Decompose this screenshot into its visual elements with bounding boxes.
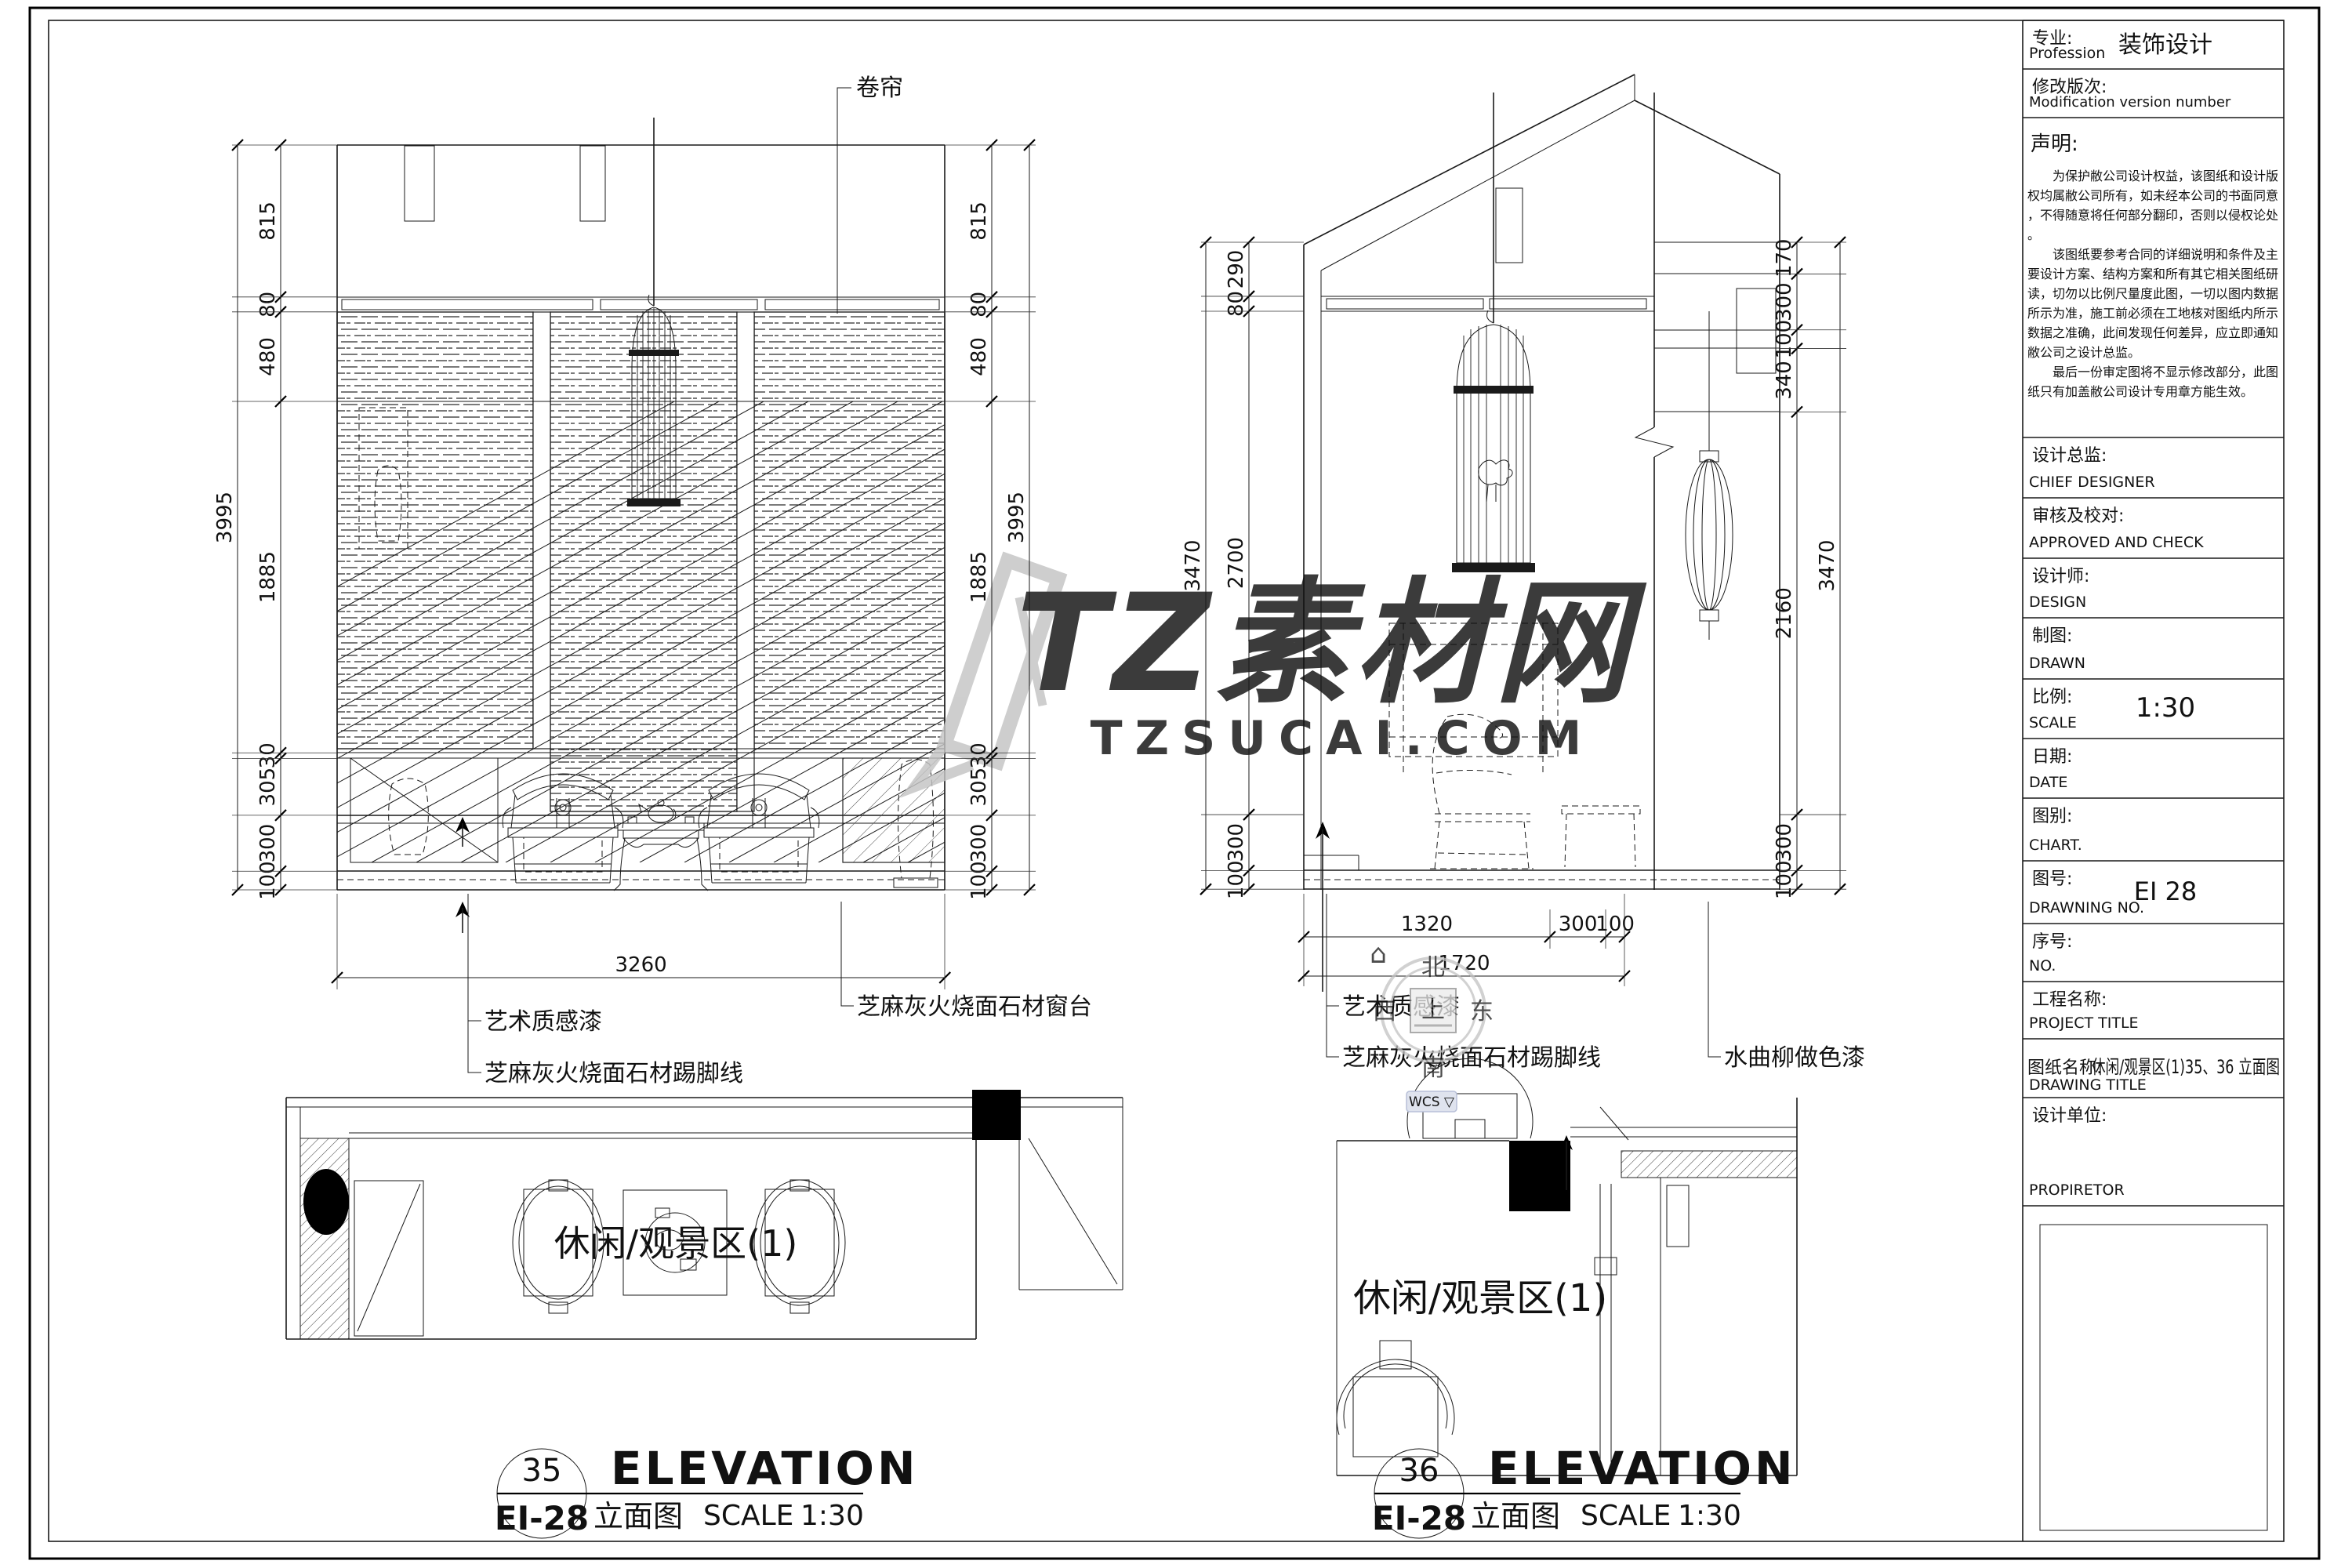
svg-text:1720: 1720: [1438, 952, 1490, 975]
statement-line: 最后一份审定图将不显示修改部分，此图: [2027, 365, 2278, 379]
label-roller-blind: 卷帘: [856, 74, 903, 102]
elevation-title-cn: 立面图: [593, 1499, 683, 1534]
wcs-selector[interactable]: WCS ▽: [1406, 1091, 1457, 1112]
label-ash-wood-paint: 水曲柳做色漆: [1724, 1044, 1865, 1072]
plan-view-35: [286, 1090, 1123, 1339]
elevation-title-cn: 立面图: [1471, 1499, 1560, 1534]
tb-label-cn: 序号:: [2032, 932, 2072, 952]
svg-text:100: 100: [1225, 860, 1248, 899]
statement-line: 该图纸要参考合同的详细说明和条件及主: [2027, 247, 2278, 262]
svg-text:480: 480: [967, 337, 991, 376]
svg-text:300: 300: [1559, 913, 1598, 936]
svg-text:100: 100: [256, 861, 280, 900]
statement-line: 读，切勿以比例尺量度此图，一切以图内数据: [2027, 286, 2278, 301]
home-icon[interactable]: ⌂: [1370, 938, 1387, 970]
svg-text:305: 305: [256, 768, 280, 807]
elevation-title-en: ELEVATION: [611, 1442, 919, 1495]
tb-value: 装饰设计: [2118, 31, 2212, 59]
statement-line: 权均属敝公司所有，如未经本公司的书面同意: [2027, 188, 2278, 203]
tb-label-en: Modification version number: [2029, 94, 2231, 111]
tb-label-cn: 制图:: [2032, 626, 2072, 646]
elevation-title-en: ELEVATION: [1488, 1442, 1796, 1495]
drawing-canvas: TZ素材网 TZSUCAI.COM 3995815804801885303053…: [0, 0, 2352, 1568]
statement-line: 。: [2027, 227, 2040, 242]
svg-text:100: 100: [1773, 860, 1796, 899]
tb-label-cn: 设计单位:: [2032, 1106, 2107, 1126]
tb-label-en: APPROVED AND CHECK: [2029, 534, 2204, 551]
bubble-number: 35: [522, 1453, 562, 1489]
svg-text:3470: 3470: [1181, 539, 1205, 591]
tb-label-en: DATE: [2029, 774, 2067, 791]
svg-text:80: 80: [256, 292, 280, 318]
scale-label: SCALE: [703, 1500, 793, 1532]
compass-east[interactable]: 东: [1470, 998, 1494, 1025]
svg-text:290: 290: [1225, 250, 1248, 289]
tb-label-cn: 设计总监:: [2032, 446, 2107, 466]
room-label-plan-36: 休闲/观景区(1): [1353, 1276, 1607, 1320]
svg-text:170: 170: [1773, 238, 1796, 278]
svg-text:3470: 3470: [1816, 539, 1839, 591]
statement-line: 纸只有加盖敝公司设计专用章方能生效。: [2027, 384, 2253, 399]
tb-label-en: PROPIRETOR: [2029, 1181, 2125, 1199]
svg-text:3995: 3995: [1005, 492, 1029, 543]
label-skirting-36: 芝麻灰火烧面石材踢脚线: [1342, 1044, 1601, 1072]
page-frame: [30, 8, 2319, 1559]
scale-value: 1:30: [1678, 1500, 1741, 1532]
tb-label-en: DESIGN: [2029, 593, 2086, 611]
label-stone-sill: 芝麻灰火烧面石材窗台: [857, 993, 1092, 1021]
scale-label: SCALE: [1581, 1500, 1671, 1532]
scale-value: 1:30: [800, 1500, 864, 1532]
tb-label-en: CHART.: [2029, 837, 2082, 854]
plan-view-36: [1337, 1058, 1797, 1475]
tb-value: 休闲/观景区(1)35、36 立面图: [2092, 1056, 2280, 1078]
statement-line: 为保护敝公司设计权益，该图纸和设计版: [2027, 169, 2278, 183]
svg-text:100: 100: [1595, 913, 1635, 936]
compass-up-label: 上: [1421, 996, 1445, 1024]
svg-text:815: 815: [967, 201, 991, 241]
tb-label-en: DRAWN: [2029, 655, 2085, 672]
svg-text:30: 30: [256, 742, 280, 768]
svg-text:2700: 2700: [1225, 537, 1248, 589]
watermark-brand: TZ素材网: [1016, 564, 1647, 722]
statement-line: 敝公司之设计总监。: [2027, 345, 2140, 360]
svg-text:300: 300: [1773, 282, 1796, 321]
tb-label-cn: 图别:: [2032, 807, 2072, 826]
tb-label-en: PROJECT TITLE: [2029, 1014, 2139, 1032]
svg-text:300: 300: [967, 824, 991, 863]
svg-text:80: 80: [967, 292, 991, 318]
svg-text:1885: 1885: [256, 551, 280, 603]
svg-text:100: 100: [967, 861, 991, 900]
statement-line: 要设计方案、结构方案和所有其它相关图纸研: [2027, 267, 2278, 281]
compass-west[interactable]: 西: [1373, 998, 1396, 1025]
svg-text:340: 340: [1773, 361, 1796, 400]
tb-label-cn: 图号:: [2032, 869, 2072, 889]
statement-line: ，不得随意将任何部分翻印，否则以侵权论处: [2027, 208, 2278, 223]
tb-label-en: SCALE: [2029, 714, 2077, 731]
svg-text:300: 300: [1225, 823, 1248, 862]
cad-sheet: TZ素材网 TZSUCAI.COM 3995815804801885303053…: [0, 0, 2352, 1568]
title-block: 专业:Profession装饰设计修改版次:Modification versi…: [2023, 20, 2284, 1541]
svg-text:30: 30: [967, 742, 991, 768]
compass-south[interactable]: 南: [1421, 1054, 1445, 1082]
svg-text:300: 300: [256, 824, 280, 863]
statement-line: 数据之准确，此间发现任何差异，应立即通知: [2027, 325, 2278, 340]
bubble-sheet-no: EI-28: [495, 1499, 589, 1537]
title-bubbles: 35EI-28ELEVATION立面图SCALE1:3036EI-28ELEVA…: [495, 1442, 1796, 1538]
tb-value: 1:30: [2136, 692, 2195, 724]
bubble-number: 36: [1399, 1453, 1439, 1489]
svg-text:1885: 1885: [967, 551, 991, 603]
wcs-label: WCS ▽: [1409, 1094, 1455, 1110]
watermark: TZ素材网 TZSUCAI.COM: [914, 561, 1647, 787]
tb-label-cn: 日期:: [2032, 747, 2072, 767]
tb-label-cn: 审核及校对:: [2032, 506, 2124, 526]
tb-label-cn: 比例:: [2032, 688, 2072, 707]
tb-label-en: DRAWNING NO.: [2029, 899, 2144, 916]
svg-text:1320: 1320: [1401, 913, 1453, 936]
elevation-36-linework: [1304, 74, 1780, 992]
tb-label-en: Profession: [2029, 45, 2105, 62]
tb-label-en: DRAWING TITLE: [2029, 1076, 2147, 1094]
room-label-plan-35: 休闲/观景区(1): [554, 1222, 798, 1265]
bubble-sheet-no: EI-28: [1372, 1499, 1466, 1537]
tb-label-cn: 设计师:: [2032, 567, 2089, 586]
svg-text:3995: 3995: [213, 492, 237, 543]
statement-title: 声明:: [2031, 132, 2078, 156]
svg-text:300: 300: [1773, 823, 1796, 862]
statement-line: 所示为准，施工前必须在工地核对图纸内所示: [2027, 306, 2278, 321]
label-art-paint-35: 艺术质感漆: [485, 1008, 602, 1036]
svg-text:2160: 2160: [1773, 587, 1796, 639]
tb-label-en: CHIEF DESIGNER: [2029, 474, 2155, 491]
compass-north[interactable]: 北: [1421, 954, 1445, 982]
label-skirting-35: 芝麻灰火烧面石材踢脚线: [485, 1060, 743, 1087]
svg-text:480: 480: [256, 337, 280, 376]
svg-text:3260: 3260: [615, 953, 667, 977]
svg-text:100: 100: [1773, 320, 1796, 359]
tb-value: EI 28: [2134, 877, 2198, 906]
tb-label-cn: 工程名称:: [2032, 990, 2107, 1010]
tb-label-en: NO.: [2029, 957, 2056, 975]
svg-text:80: 80: [1225, 291, 1248, 317]
svg-text:305: 305: [967, 768, 991, 807]
svg-text:815: 815: [256, 201, 280, 241]
watermark-domain: TZSUCAI.COM: [1091, 711, 1595, 766]
